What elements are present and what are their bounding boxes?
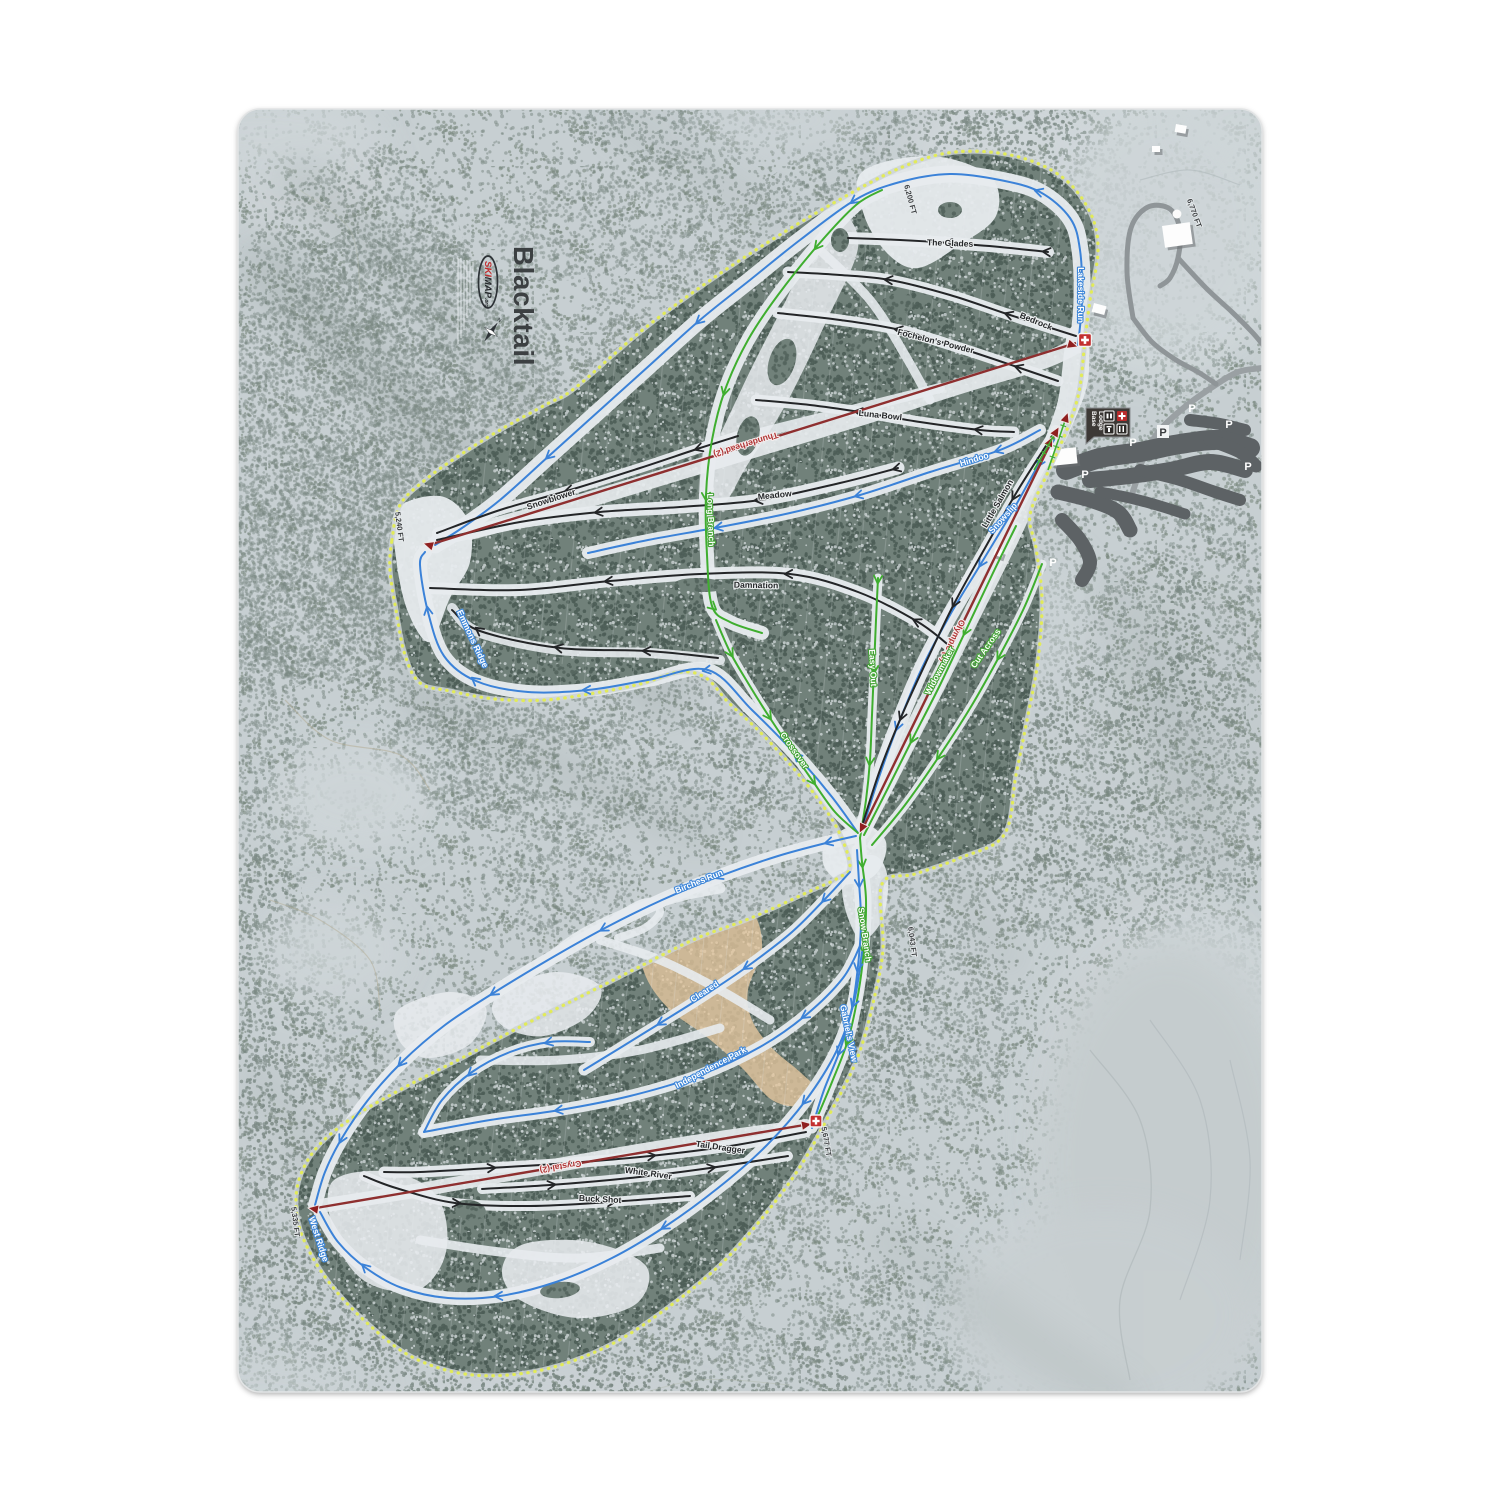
svg-text:P: P [1159,427,1166,439]
svg-text:P: P [1244,461,1251,473]
svg-text:Lakeside Run: Lakeside Run [1076,267,1086,323]
svg-text:Damnation: Damnation [734,580,779,591]
svg-text:The Glades: The Glades [927,237,974,249]
svg-text:P: P [1129,437,1136,449]
svg-text:P: P [1188,403,1195,415]
svg-text:P: P [1081,469,1088,481]
svg-text:P: P [1225,419,1232,431]
svg-text:Long Branch: Long Branch [705,493,717,546]
svg-text:Blacktail: Blacktail [508,246,539,366]
svg-text:Easy Out: Easy Out [867,649,879,687]
svg-text:Lodge: Lodge [1097,411,1104,431]
svg-text:Base: Base [1090,411,1097,427]
svg-text:P: P [1049,557,1056,569]
